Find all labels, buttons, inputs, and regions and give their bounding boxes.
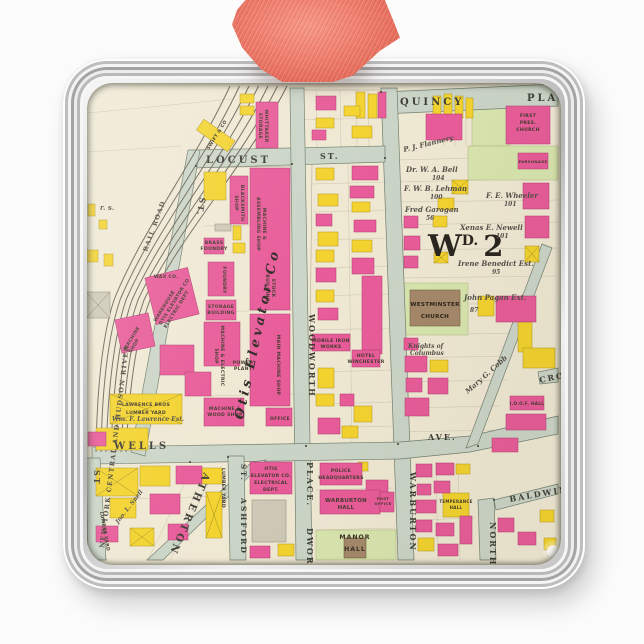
assembling-shop-label: MACHINE &	[261, 208, 267, 240]
street-label-ashford-st: ST.	[239, 464, 248, 482]
first-pres-church-label: FIRST	[520, 113, 537, 119]
svg-text:OFFICE: OFFICE	[374, 501, 391, 506]
street-label-woodworth-lower: DWORTH	[305, 528, 315, 565]
svg-text:104: 104	[432, 175, 445, 182]
parsonage-label: PARSONAGE	[519, 159, 548, 164]
svg-text:101: 101	[504, 201, 517, 208]
street-label-left-st: ST	[92, 470, 102, 486]
lawrence-lumber-label: LAWRENCE BROS	[122, 402, 170, 408]
svg-text:SHOP: SHOP	[233, 195, 239, 211]
svg-text:BUILDING: BUILDING	[207, 310, 234, 316]
svg-text:100: 100	[430, 194, 443, 201]
street-label-warburton: WARBURTON	[408, 471, 418, 552]
street-label-woodworth-place: PLACE.	[305, 462, 315, 507]
map-print: QUINCY PLACE LOCUST ST. WELLS AVE. WOODW…	[87, 83, 561, 565]
svg-text:ELECTRICAL: ELECTRICAL	[254, 480, 288, 486]
machine-electric-label: MACHINE & ELECTRIC	[219, 326, 225, 387]
svg-text:FOUNDRY: FOUNDRY	[200, 246, 228, 252]
owner-garagan: Fred Garagan	[404, 205, 459, 214]
whittaker-storage-label: WHITTAKER	[263, 109, 269, 142]
ornament-frame: QUINCY PLACE LOCUST ST. WELLS AVE. WOODW…	[63, 59, 585, 589]
svg-text:HALL: HALL	[450, 505, 463, 510]
street-label-woodworth: WOODWORTH	[307, 313, 317, 398]
brass-foundry-label: BRASS	[205, 240, 224, 246]
owner-bell: Dr. W. A. Bell	[405, 165, 458, 174]
svg-text:WINCHESTER: WINCHESTER	[347, 359, 384, 365]
svg-text:ASSEMBLING SHOP: ASSEMBLING SHOP	[255, 197, 261, 251]
police-hq-label: POLICE	[331, 468, 351, 474]
svg-text:87: 87	[470, 307, 479, 314]
owner-pagan: John Pagan Ext.	[462, 293, 526, 302]
svg-text:ELEVATOR CO.: ELEVATOR CO.	[251, 473, 291, 479]
owner-newell: Xenas E. Newell	[459, 223, 523, 232]
street-label-ashford: ASHFORD	[239, 497, 248, 555]
owner-fragment: r. s.	[100, 203, 114, 212]
street-label-locust-st: ST.	[320, 151, 339, 161]
temperance-hall-label: TEMPERANCE	[439, 499, 472, 504]
owner-lehman: F. W. B. Lehman	[403, 184, 467, 193]
manor-hall-label: MANOR	[339, 534, 370, 541]
owner-knights: Knights of	[407, 343, 445, 350]
svg-text:WORKS: WORKS	[321, 344, 342, 350]
svg-text:HALL: HALL	[338, 505, 355, 511]
product-photo: QUINCY PLACE LOCUST ST. WELLS AVE. WOODW…	[0, 0, 644, 644]
svg-text:HALL: HALL	[344, 546, 366, 553]
street-label-ave: AVE.	[427, 432, 457, 442]
svg-text:HEADQUARTERS: HEADQUARTERS	[318, 475, 363, 481]
westminster-label: WESTMINSTER	[410, 302, 460, 308]
street-label-north: NORTH	[488, 522, 498, 565]
svg-text:95: 95	[492, 269, 500, 276]
office-label: OFFICE	[270, 416, 290, 422]
westminster-church-building	[410, 290, 460, 326]
street-label-quincy: QUINCY	[400, 97, 464, 108]
atlas-map: QUINCY PLACE LOCUST ST. WELLS AVE. WOODW…	[87, 83, 561, 565]
ioof-hall-label: I.O.O.F. HALL	[510, 401, 545, 406]
owner-wheeler: F. E. Wheeler	[485, 191, 539, 200]
wax-co-label: WAX CO.	[154, 274, 179, 280]
warburton-hall-label: WARBURTON	[325, 498, 367, 504]
svg-text:Columbus: Columbus	[410, 350, 444, 357]
lumber-yard-label: LUMBER YARD	[220, 468, 226, 508]
hotel-label: HOTEL	[357, 353, 375, 359]
storage-building-label: STORAGE	[208, 304, 234, 310]
svg-text:CHURCH: CHURCH	[421, 314, 449, 320]
owner-benedict: Irene Benedict Est.	[457, 259, 534, 268]
svg-text:DEPT.: DEPT.	[263, 487, 279, 493]
street-label-locust: LOCUST	[206, 155, 271, 166]
foundry-label: FOUNDRY	[221, 266, 227, 294]
mobile-iron-works-label: MOBILE IRON	[312, 338, 350, 344]
svg-text:STORAGE: STORAGE	[257, 113, 263, 139]
svg-text:56: 56	[426, 215, 435, 222]
street-label-wells: WELLS	[113, 441, 169, 452]
blacksmith-shop-label: BLACKSMITH	[239, 185, 245, 221]
svg-text:SHOP: SHOP	[213, 348, 219, 364]
street-label-place: PLACE	[527, 93, 561, 104]
main-machine-shop-label: MAIN MACHINE SHOP	[275, 335, 281, 396]
owner-lawrence-est: Wm. F. Lawrence Est.	[112, 416, 184, 423]
svg-text:PRES.: PRES.	[520, 120, 537, 126]
svg-text:CHURCH: CHURCH	[516, 127, 540, 133]
svg-text:101: 101	[496, 233, 509, 240]
otis-electrical-label: OTIS	[264, 466, 277, 472]
